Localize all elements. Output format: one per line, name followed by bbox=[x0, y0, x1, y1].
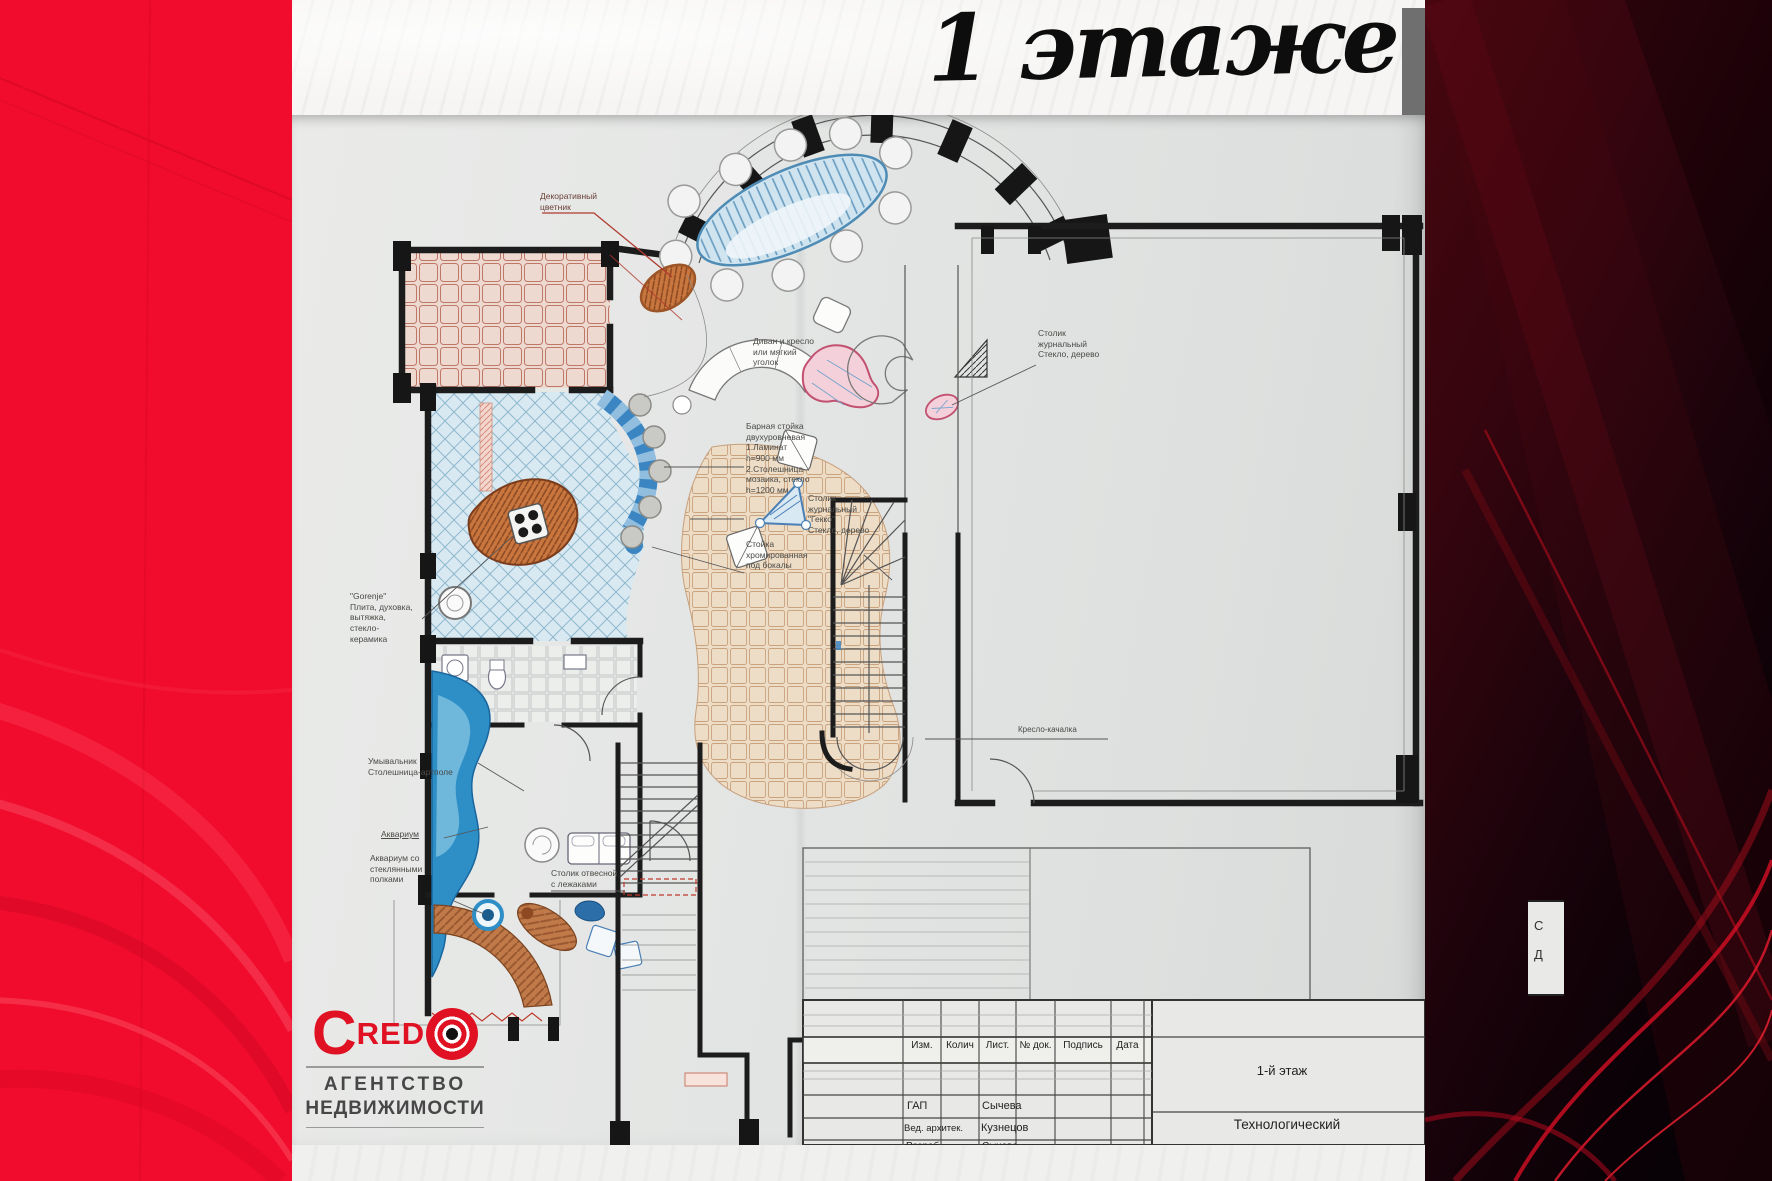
tb-floor-name: 1-й этаж bbox=[1162, 1063, 1402, 1078]
kitchen-counter-strip bbox=[480, 403, 492, 491]
kitchen-sink bbox=[439, 587, 471, 619]
logo-letters-red: RED bbox=[357, 1016, 425, 1052]
label-wall-table: Столик отвесной с лежаками bbox=[551, 868, 617, 889]
label-bar-counter: Барная стойка двухуровневая 1.Ламинат h=… bbox=[746, 421, 810, 495]
title-block-headers: Изм. Колич Лист. № док. Подпись Дата bbox=[903, 1040, 1144, 1051]
label-coffee-table-gekko: Столик журнальный "Гекко" Стекло, дерево bbox=[808, 493, 869, 536]
tb-name-kuznetsov: Кузнецов bbox=[981, 1122, 1028, 1134]
label-washbasin: Умывальник Столешница-артполе bbox=[368, 756, 480, 777]
label-coffee-table-right: Столик журнальный Стекло, дерево bbox=[1038, 328, 1099, 360]
coffee-table-right bbox=[922, 390, 962, 424]
left-red-band bbox=[0, 0, 292, 1181]
tb-role-gap: ГАП bbox=[907, 1100, 927, 1112]
title-block-grid bbox=[803, 848, 1425, 1145]
floor-plan-drawing: .w{stroke:#1c1c1c;stroke-width:6.5;fill:… bbox=[292, 115, 1425, 1145]
entry-mat bbox=[685, 1073, 727, 1086]
label-chair: Кресло-качалка bbox=[1018, 725, 1077, 735]
label-stove: "Gorenje" Плита, духовка, вытяжка, стекл… bbox=[350, 591, 413, 644]
top-paper-strip: 1 этаже bbox=[292, 0, 1425, 115]
armchair bbox=[812, 296, 853, 335]
floor-title: 1 этаже bbox=[926, 0, 1398, 103]
corridor bbox=[905, 265, 958, 800]
title-block-edge-sliver: С Д bbox=[1528, 900, 1564, 996]
tb-header-list: Лист. bbox=[979, 1040, 1016, 1051]
label-aquarium-shelves: Аквариум со стеклянными полками bbox=[370, 853, 422, 885]
lounge-kidney-cushion bbox=[575, 901, 604, 921]
red-band-swirls-graphic bbox=[0, 0, 292, 1181]
tb-role-razrab: Разраб. bbox=[906, 1141, 942, 1145]
label-flower-bed: Декоративный цветник bbox=[540, 191, 597, 212]
tb-header-izm: Изм. bbox=[903, 1040, 941, 1051]
wall-hatch-wedge bbox=[955, 340, 987, 377]
slide: 1 этаже bbox=[0, 0, 1772, 1181]
logo-letter-c: C bbox=[312, 1006, 357, 1062]
right-dark-band bbox=[1425, 0, 1772, 1181]
logo-underline bbox=[306, 1127, 484, 1128]
tb-header-kolich: Колич bbox=[941, 1040, 979, 1051]
tb-name-sycheva: Сычева bbox=[982, 1100, 1022, 1112]
tb-role-architect: Вед. архитек. bbox=[904, 1123, 963, 1134]
logo-agency-line2: НЕДВИЖИМОСТИ bbox=[300, 1098, 490, 1120]
bullseye-icon bbox=[426, 1008, 478, 1060]
tb-header-data: Дата bbox=[1111, 1040, 1144, 1051]
right-wing-room bbox=[958, 215, 1422, 803]
tb-name-razrab: Сычева bbox=[982, 1141, 1018, 1145]
edge-fragment-top: С bbox=[1528, 918, 1564, 933]
round-tub bbox=[525, 828, 559, 862]
dark-band-swirls-graphic bbox=[1425, 0, 1772, 1181]
gray-corner-strip bbox=[1402, 8, 1425, 115]
credo-logo: C RED АГЕНТСТВО НЕДВИЖИМОСТИ bbox=[300, 1006, 490, 1134]
label-sofa: Диван и кресло или мягкий уголок bbox=[753, 336, 814, 368]
floor-plan-area: .w{stroke:#1c1c1c;stroke-width:6.5;fill:… bbox=[292, 115, 1425, 1145]
lounge-cushion bbox=[586, 925, 619, 958]
tb-doc-type: Технологический bbox=[1162, 1117, 1412, 1132]
tb-header-doc: № док. bbox=[1016, 1040, 1055, 1051]
label-aquarium: Аквариум bbox=[381, 829, 419, 840]
terrace-tile-floor bbox=[402, 250, 610, 388]
edge-fragment-bottom: Д bbox=[1528, 947, 1564, 962]
bottom-paper-strip bbox=[292, 1145, 1425, 1181]
tb-header-podpis: Подпись bbox=[1055, 1040, 1111, 1051]
coffee-table-gekko bbox=[803, 345, 878, 407]
label-glass-stand: Стойка хромированная под бокалы bbox=[746, 539, 808, 571]
logo-agency-line1: АГЕНТСТВО bbox=[300, 1074, 490, 1096]
